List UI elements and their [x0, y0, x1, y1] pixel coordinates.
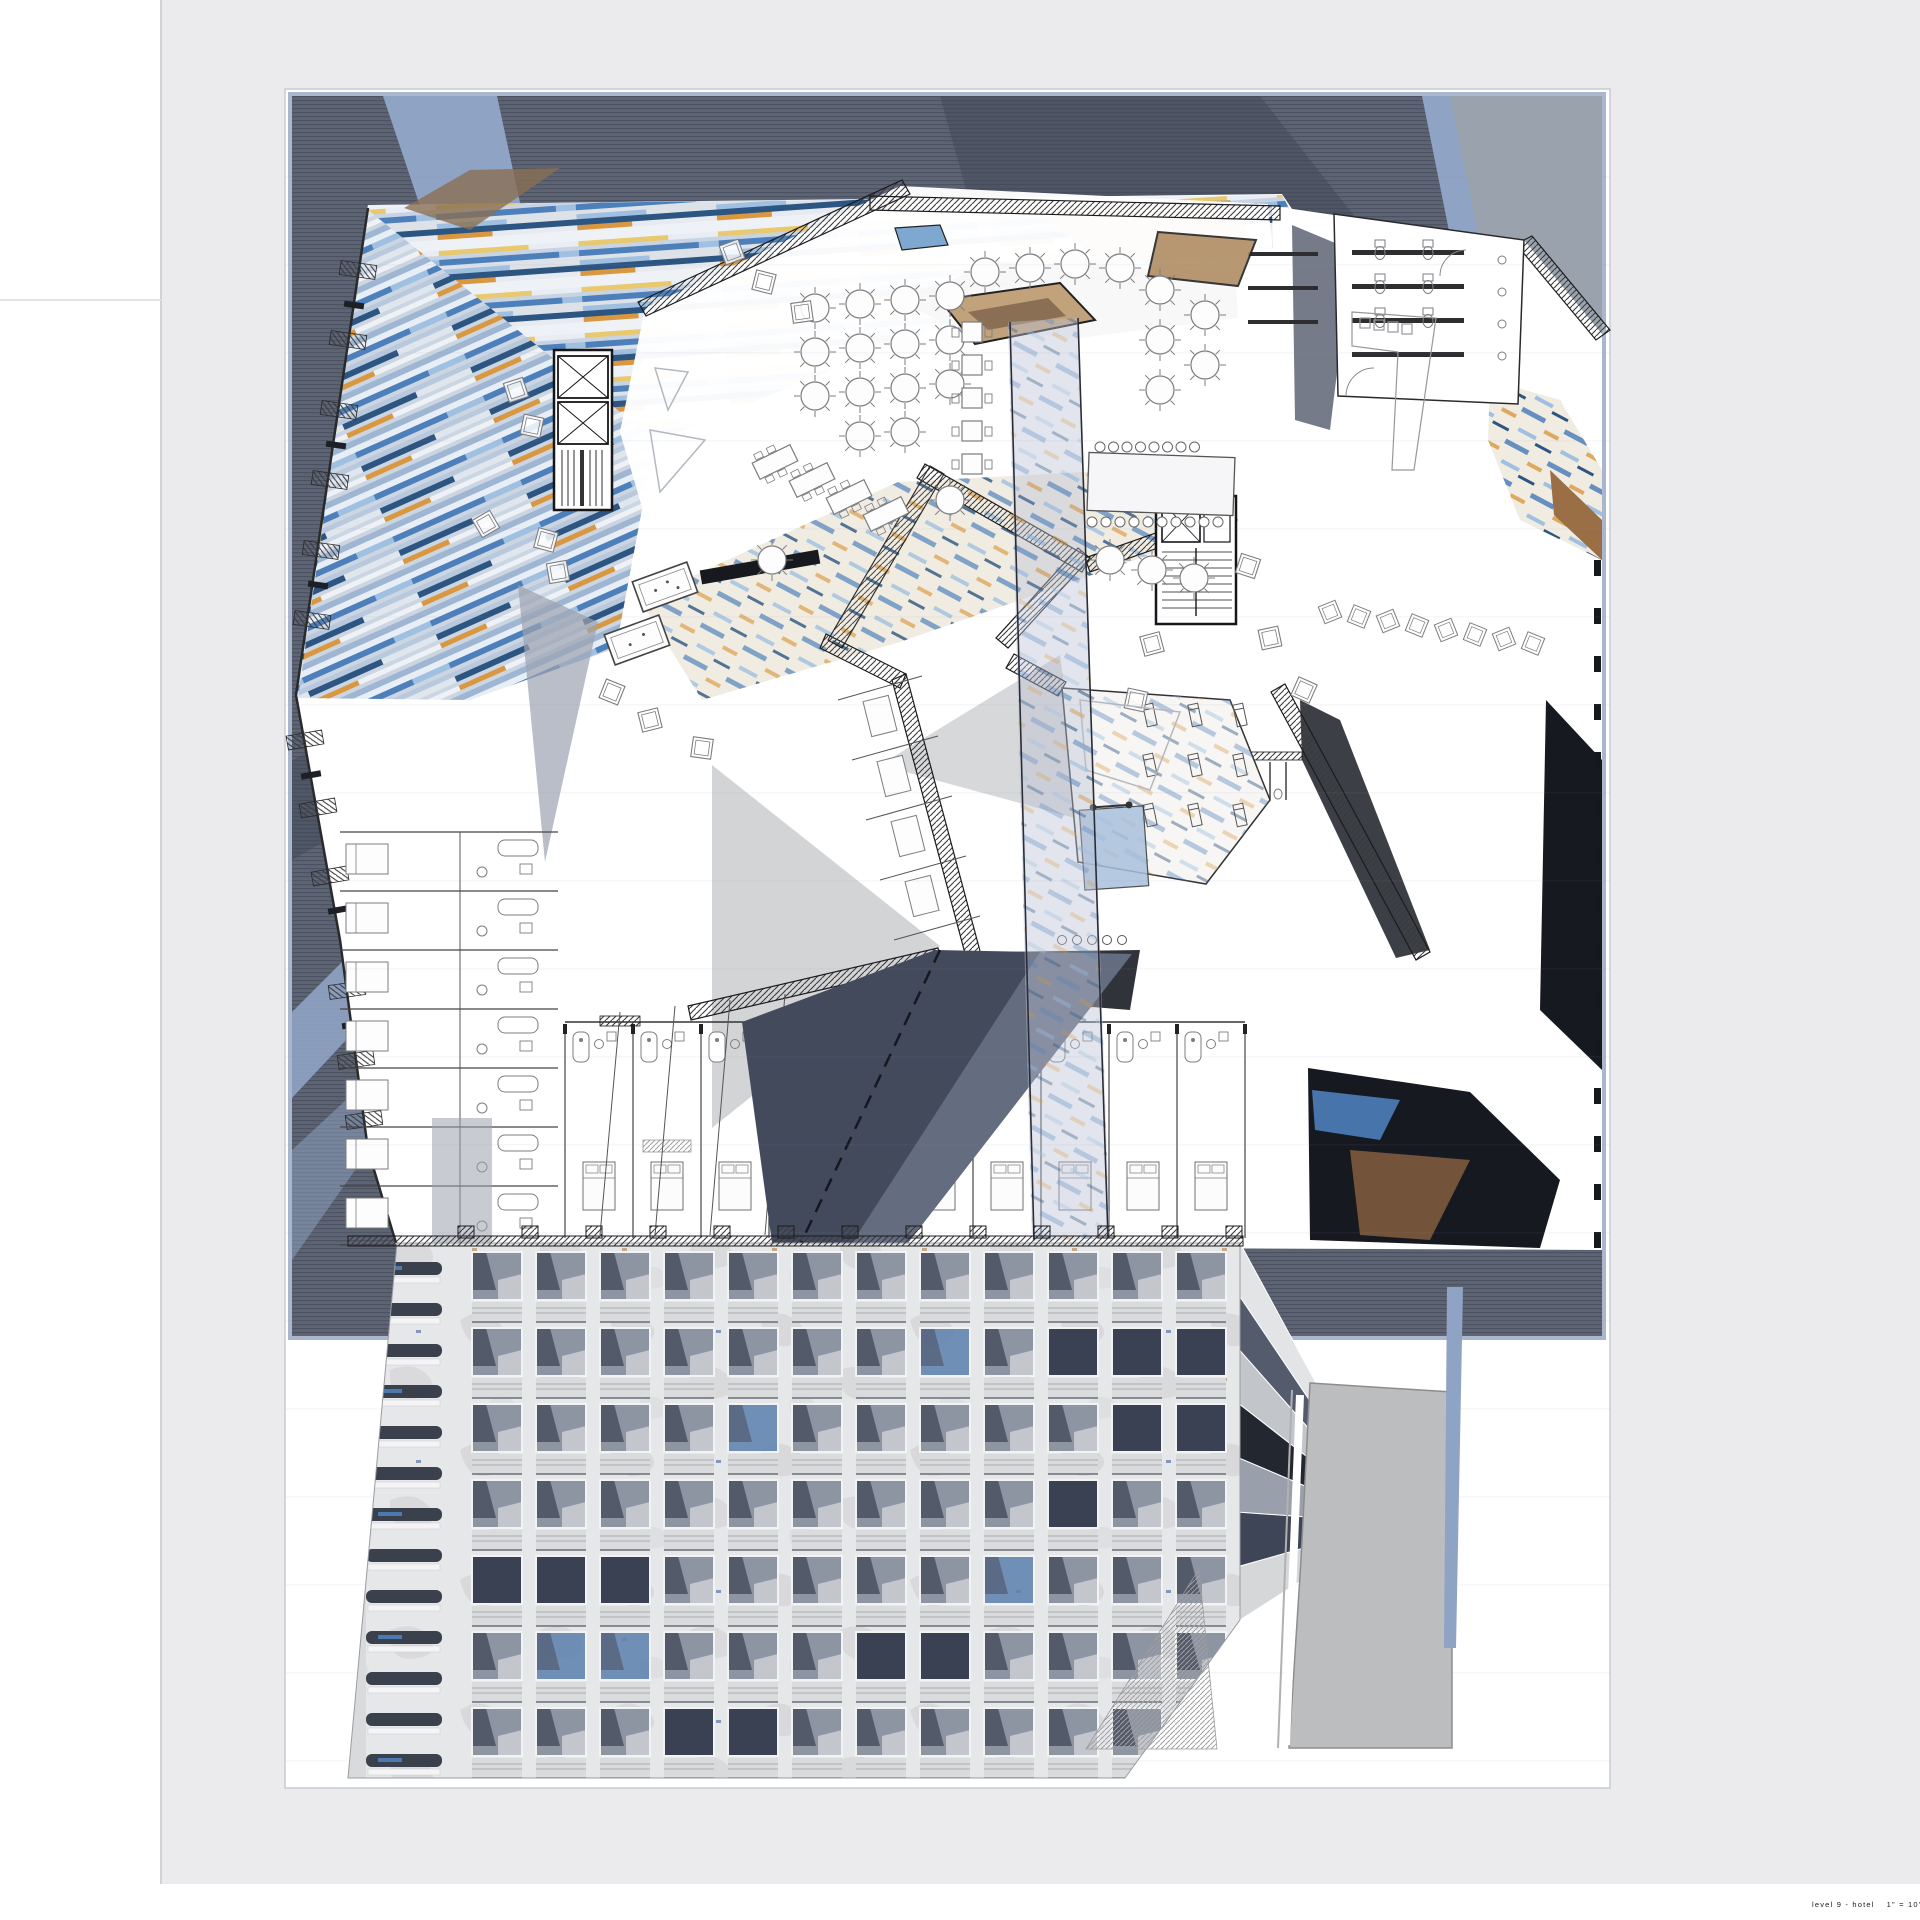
drawing-sheet-page: level 9 - hotel 1" = 10' - 0" — [0, 0, 1920, 1920]
sheet-caption: level 9 - hotel 1" = 10' - 0" — [1812, 1900, 1920, 1909]
gray-tower-shape — [1289, 1383, 1452, 1748]
caption-title: level 9 - hotel — [1812, 1900, 1875, 1909]
caption-scale: 1" = 10' - 0" — [1887, 1900, 1920, 1909]
plan-artwork — [0, 0, 1920, 1920]
